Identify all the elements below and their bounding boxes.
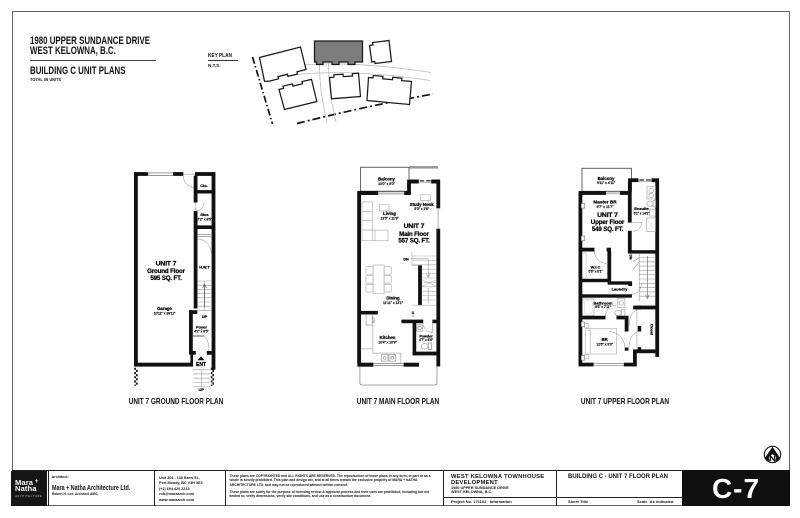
svg-text:7'2" x 8'5": 7'2" x 8'5"	[197, 218, 213, 222]
svg-text:4'2" x 8'5": 4'2" x 8'5"	[194, 329, 209, 333]
svg-text:DN: DN	[629, 255, 633, 260]
svg-text:Ground Floor: Ground Floor	[147, 268, 185, 275]
svg-text:BR: BR	[601, 337, 608, 342]
svg-text:557 SQ. FT.: 557 SQ. FT.	[398, 238, 430, 245]
svg-text:9'11" x 4'11": 9'11" x 4'11"	[597, 181, 616, 185]
svg-text:Upper Floor: Upper Floor	[591, 219, 625, 226]
svg-text:549 SQ. FT.: 549 SQ. FT.	[592, 226, 624, 233]
svg-text:Stor.: Stor.	[200, 212, 209, 217]
svg-text:Kitchen: Kitchen	[380, 335, 396, 340]
svg-text:4'7" x 6'6": 4'7" x 6'6"	[419, 338, 433, 342]
svg-text:Laundry: Laundry	[612, 287, 629, 292]
svg-text:5'6" x 6'1": 5'6" x 6'1"	[589, 269, 603, 273]
svg-text:Clo.: Clo.	[200, 183, 208, 188]
svg-text:UP: UP	[202, 314, 208, 319]
svg-text:REF: REF	[372, 316, 376, 323]
svg-text:DN: DN	[403, 257, 409, 261]
svg-text:Dining: Dining	[386, 296, 400, 301]
svg-text:Garage: Garage	[157, 306, 172, 311]
svg-text:ENT: ENT	[196, 362, 206, 368]
svg-text:10'4" x 10'9": 10'4" x 10'9"	[378, 340, 397, 344]
svg-text:UNIT 7: UNIT 7	[404, 223, 425, 230]
svg-text:5'0" x 2'6": 5'0" x 2'6"	[414, 207, 430, 211]
svg-text:12'6" x 9'3": 12'6" x 9'3"	[596, 342, 614, 346]
svg-text:UP: UP	[199, 387, 205, 392]
svg-text:11'11" x 13'1": 11'11" x 13'1"	[383, 301, 404, 305]
svg-text:S: S	[412, 310, 415, 315]
svg-text:Balcony: Balcony	[378, 177, 395, 182]
svg-text:10'11" x 39'11": 10'11" x 39'11"	[154, 311, 177, 315]
svg-text:Living: Living	[383, 211, 396, 216]
svg-text:UNIT 7: UNIT 7	[597, 212, 618, 219]
svg-text:H.W.T: H.W.T	[199, 265, 210, 269]
svg-text:Ensuite: Ensuite	[634, 206, 649, 211]
svg-text:5'1" x 14'1": 5'1" x 14'1"	[634, 211, 650, 215]
svg-text:10'0" x 5'0": 10'0" x 5'0"	[378, 182, 396, 186]
svg-text:Master BR: Master BR	[593, 200, 617, 205]
svg-text:UNIT 7: UNIT 7	[156, 261, 177, 268]
svg-text:595 SQ. FT.: 595 SQ. FT.	[150, 275, 182, 282]
svg-text:Closet: Closet	[650, 324, 654, 336]
svg-text:9'7" x 11'7": 9'7" x 11'7"	[597, 205, 615, 209]
svg-text:13'5" x 11'9": 13'5" x 11'9"	[380, 216, 399, 220]
